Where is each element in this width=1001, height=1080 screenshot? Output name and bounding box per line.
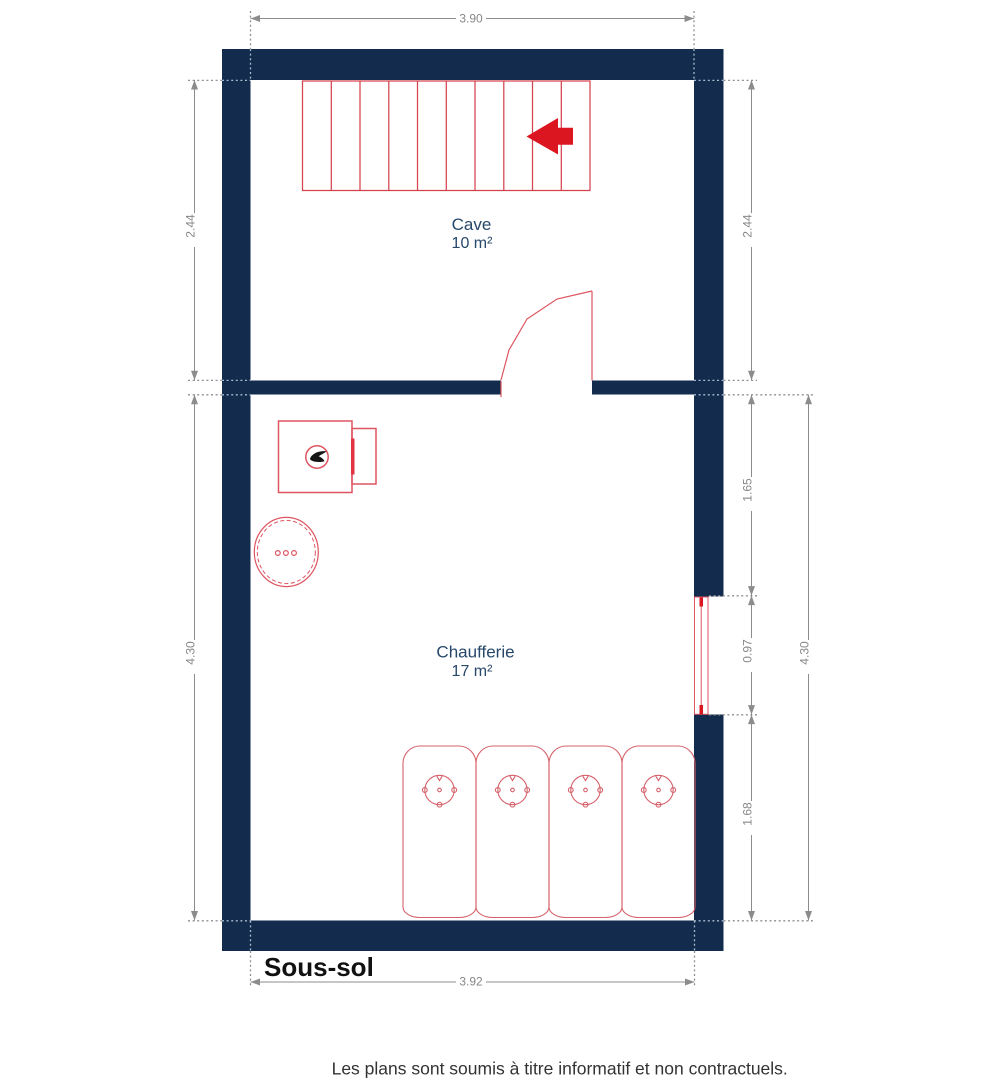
svg-text:4.30: 4.30 [184,641,198,665]
svg-text:4.30: 4.30 [798,641,812,665]
svg-text:1.65: 1.65 [741,478,755,502]
svg-text:Sous-sol: Sous-sol [264,952,374,982]
svg-text:2.44: 2.44 [184,214,198,238]
svg-text:3.92: 3.92 [459,975,483,989]
svg-text:Cave: Cave [452,215,492,234]
svg-text:17 m²: 17 m² [452,663,494,680]
svg-text:Chaufferie: Chaufferie [436,643,514,662]
svg-text:1.68: 1.68 [741,802,755,826]
svg-text:3.90: 3.90 [459,12,483,26]
svg-text:10 m²: 10 m² [452,235,494,252]
svg-text:0.97: 0.97 [741,639,755,663]
svg-text:2.44: 2.44 [741,214,755,238]
svg-text:Les plans sont soumis à titre: Les plans sont soumis à titre informatif… [332,1059,788,1079]
